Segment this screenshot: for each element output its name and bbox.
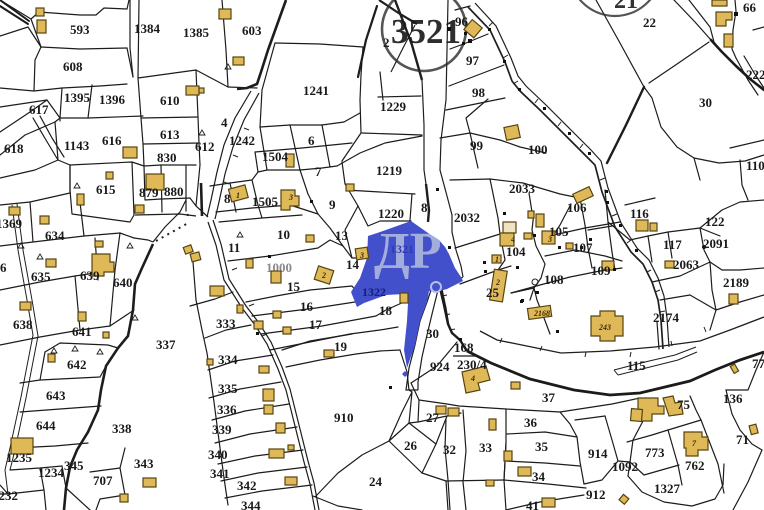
svg-text:615: 615 xyxy=(96,182,116,197)
svg-text:104: 104 xyxy=(506,244,526,259)
svg-text:66: 66 xyxy=(743,0,757,15)
svg-text:8: 8 xyxy=(224,191,231,206)
svg-text:914: 914 xyxy=(588,446,608,461)
svg-text:35: 35 xyxy=(535,439,549,454)
svg-text:6: 6 xyxy=(308,133,315,148)
svg-text:1505: 1505 xyxy=(252,194,279,209)
svg-text:25: 25 xyxy=(486,285,500,300)
svg-text:1385: 1385 xyxy=(183,25,210,40)
svg-text:136: 136 xyxy=(723,391,743,406)
svg-text:32: 32 xyxy=(443,442,456,457)
svg-text:41: 41 xyxy=(526,498,539,510)
svg-text:707: 707 xyxy=(93,473,113,488)
svg-text:37: 37 xyxy=(542,390,556,405)
svg-text:2174: 2174 xyxy=(653,310,680,325)
svg-text:340: 340 xyxy=(208,447,228,462)
svg-text:9: 9 xyxy=(329,197,336,212)
svg-text:3: 3 xyxy=(547,235,552,244)
svg-text:36: 36 xyxy=(524,415,538,430)
svg-text:334: 334 xyxy=(218,352,238,367)
svg-text:880: 880 xyxy=(164,184,184,199)
svg-text:117: 117 xyxy=(663,237,682,252)
svg-text:634: 634 xyxy=(45,228,65,243)
svg-text:337: 337 xyxy=(156,337,176,352)
svg-text:1322: 1322 xyxy=(362,285,386,299)
svg-text:1321: 1321 xyxy=(390,242,414,256)
svg-text:593: 593 xyxy=(70,22,90,37)
svg-text:339: 339 xyxy=(212,422,232,437)
svg-text:18: 18 xyxy=(379,303,393,318)
svg-text:1395: 1395 xyxy=(64,90,91,105)
svg-text:1241: 1241 xyxy=(303,83,329,98)
svg-text:635: 635 xyxy=(31,269,51,284)
svg-text:243: 243 xyxy=(598,323,611,332)
svg-text:4: 4 xyxy=(221,115,228,130)
svg-text:108: 108 xyxy=(544,272,564,287)
svg-text:116: 116 xyxy=(630,206,649,221)
svg-text:96: 96 xyxy=(455,14,469,29)
svg-text:2032: 2032 xyxy=(454,210,480,225)
svg-text:105: 105 xyxy=(549,224,569,239)
svg-text:338: 338 xyxy=(112,421,132,436)
svg-text:342: 342 xyxy=(237,478,257,493)
svg-text:99: 99 xyxy=(470,138,484,153)
svg-text:1: 1 xyxy=(495,255,499,264)
svg-text:4: 4 xyxy=(510,235,515,244)
svg-text:830: 830 xyxy=(157,150,177,165)
svg-text:1232: 1232 xyxy=(0,488,18,503)
svg-text:1143: 1143 xyxy=(64,138,90,153)
svg-text:15: 15 xyxy=(287,279,301,294)
svg-text:2091: 2091 xyxy=(703,236,729,251)
svg-text:1396: 1396 xyxy=(99,92,126,107)
svg-text:2189: 2189 xyxy=(723,275,750,290)
svg-text:2223: 2223 xyxy=(746,67,764,82)
svg-text:773: 773 xyxy=(645,445,665,460)
svg-text:107: 107 xyxy=(573,240,593,255)
svg-text:641: 641 xyxy=(72,324,92,339)
svg-text:100: 100 xyxy=(528,142,548,157)
svg-text:115: 115 xyxy=(627,358,646,373)
svg-text:617: 617 xyxy=(29,102,49,117)
svg-text:1234: 1234 xyxy=(38,465,65,480)
svg-text:122: 122 xyxy=(705,214,725,229)
svg-text:75: 75 xyxy=(677,397,691,412)
svg-text:1092: 1092 xyxy=(612,459,638,474)
svg-text:1369: 1369 xyxy=(0,216,23,231)
svg-text:24: 24 xyxy=(369,474,383,489)
svg-text:1: 1 xyxy=(236,191,240,200)
svg-text:14: 14 xyxy=(346,257,360,272)
svg-text:11: 11 xyxy=(228,240,240,255)
svg-text:643: 643 xyxy=(46,388,66,403)
svg-text:19: 19 xyxy=(334,339,348,354)
svg-text:16: 16 xyxy=(300,299,314,314)
svg-text:77: 77 xyxy=(752,356,764,371)
svg-text:642: 642 xyxy=(67,357,87,372)
svg-text:616: 616 xyxy=(102,133,122,148)
svg-text:33: 33 xyxy=(479,440,493,455)
svg-text:17: 17 xyxy=(309,317,323,332)
svg-text:341: 341 xyxy=(210,466,230,481)
svg-text:230/4: 230/4 xyxy=(457,357,487,372)
svg-text:30: 30 xyxy=(699,95,712,110)
svg-text:638: 638 xyxy=(13,317,33,332)
svg-text:613: 613 xyxy=(160,127,180,142)
svg-text:168: 168 xyxy=(454,340,474,355)
svg-text:639: 639 xyxy=(80,268,100,283)
svg-text:22: 22 xyxy=(643,15,656,30)
svg-text:2: 2 xyxy=(321,271,326,280)
svg-text:343: 343 xyxy=(134,456,154,471)
svg-text:8: 8 xyxy=(421,200,428,215)
svg-text:1220: 1220 xyxy=(378,206,404,221)
svg-text:640: 640 xyxy=(113,275,133,290)
svg-text:21: 21 xyxy=(614,0,638,14)
svg-text:762: 762 xyxy=(685,458,705,473)
svg-text:30: 30 xyxy=(426,326,439,341)
svg-text:97: 97 xyxy=(466,53,480,68)
svg-text:608: 608 xyxy=(63,59,83,74)
svg-text:2033: 2033 xyxy=(509,181,536,196)
svg-text:2063: 2063 xyxy=(673,257,700,272)
svg-text:98: 98 xyxy=(472,85,486,100)
svg-text:618: 618 xyxy=(4,141,24,156)
svg-text:3521: 3521 xyxy=(391,12,461,51)
svg-text:13: 13 xyxy=(335,228,349,243)
svg-text:336: 336 xyxy=(217,402,237,417)
svg-text:1242: 1242 xyxy=(229,133,255,148)
svg-text:2168: 2168 xyxy=(533,309,550,318)
svg-text:1327: 1327 xyxy=(654,481,681,496)
svg-text:610: 610 xyxy=(160,93,180,108)
svg-text:612: 612 xyxy=(195,139,215,154)
svg-text:106: 106 xyxy=(567,200,587,215)
svg-text:3: 3 xyxy=(359,251,364,260)
svg-text:2: 2 xyxy=(383,35,390,50)
svg-text:879: 879 xyxy=(139,185,159,200)
svg-text:7: 7 xyxy=(315,164,322,179)
svg-text:4: 4 xyxy=(470,374,475,383)
svg-text:3: 3 xyxy=(288,193,293,202)
svg-text:345: 345 xyxy=(64,458,84,473)
svg-text:27: 27 xyxy=(426,410,440,425)
svg-text:333: 333 xyxy=(216,316,236,331)
svg-text:26: 26 xyxy=(404,438,418,453)
svg-text:109: 109 xyxy=(591,263,611,278)
svg-text:636: 636 xyxy=(0,260,7,275)
svg-text:344: 344 xyxy=(241,498,261,510)
svg-text:335: 335 xyxy=(218,381,238,396)
svg-text:1219: 1219 xyxy=(376,163,403,178)
svg-text:910: 910 xyxy=(334,410,354,425)
svg-text:603: 603 xyxy=(242,23,262,38)
svg-text:912: 912 xyxy=(586,487,606,502)
svg-text:1104: 1104 xyxy=(746,158,764,173)
svg-text:644: 644 xyxy=(36,418,56,433)
svg-text:924: 924 xyxy=(430,359,450,374)
svg-text:10: 10 xyxy=(277,227,290,242)
svg-text:1504: 1504 xyxy=(262,149,289,164)
svg-text:1229: 1229 xyxy=(380,99,407,114)
svg-text:71: 71 xyxy=(736,432,749,447)
svg-text:34: 34 xyxy=(532,469,546,484)
svg-text:1235: 1235 xyxy=(6,450,33,465)
svg-text:1384: 1384 xyxy=(134,21,161,36)
svg-text:2: 2 xyxy=(495,278,500,287)
